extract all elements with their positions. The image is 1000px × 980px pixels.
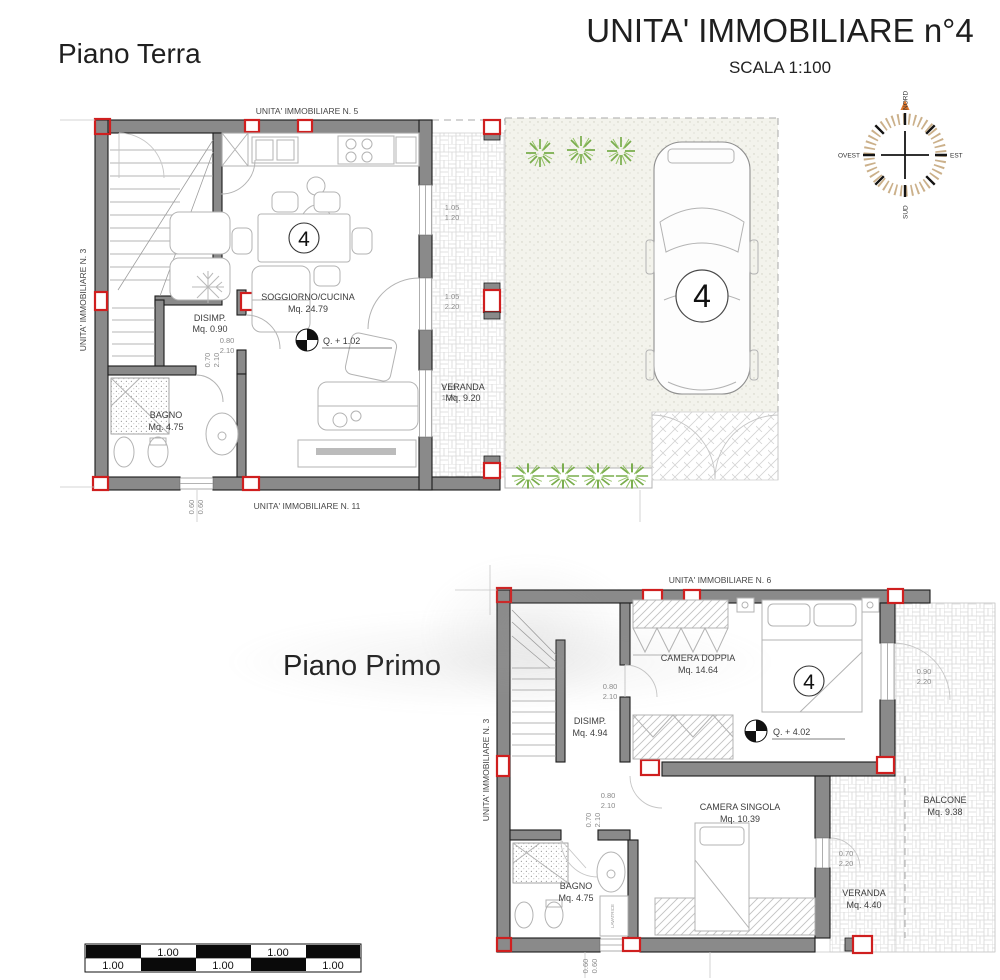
gf-living-area: Mq. 24.79 (288, 304, 328, 314)
ff-doppia-name: CAMERA DOPPIA (661, 653, 736, 663)
ff-dim: 0.90 (917, 667, 932, 676)
gf-dim: 0.80 (220, 336, 235, 345)
wardrobe (633, 715, 733, 759)
ff-neighbor-top-label: UNITA' IMMOBILIARE N. 6 (669, 575, 772, 585)
gf-living-name: SOGGIORNO/CUCINA (261, 292, 355, 302)
sheet-title: UNITA' IMMOBILIARE n°4 (560, 12, 1000, 50)
ff-veranda-area: Mq. 4.40 (846, 900, 881, 910)
compass-north-label: NORD (903, 91, 910, 110)
ground-floor-plan: 4 (60, 106, 778, 522)
ff-level-text: Q. + 4.02 (773, 727, 810, 737)
scale-note: SCALA 1:100 (560, 58, 1000, 78)
ff-neighbor-left-label: UNITA' IMMOBILIARE N. 3 (481, 718, 491, 821)
plan-drawing: NORD SUD OVEST EST (0, 0, 1000, 980)
ff-staircase (512, 610, 556, 756)
wardrobe (633, 600, 728, 628)
ff-bagno-name: BAGNO (560, 881, 593, 891)
ff-dim: 0.70 (839, 849, 854, 858)
ff-dim: 0.60 (590, 959, 599, 974)
ff-singola-name: CAMERA SINGOLA (700, 802, 781, 812)
compass-south-label: SUD (903, 205, 910, 219)
gf-dim: 2.20 (445, 302, 460, 311)
ff-dim: 2.20 (917, 677, 932, 686)
sink-icon (597, 852, 625, 892)
ff-disimp-area: Mq. 4.94 (572, 728, 607, 738)
gf-level-text: Q. + 1.02 (323, 336, 360, 346)
gf-dim: 2.10 (220, 346, 235, 355)
gf-disimp-area: Mq. 0.90 (192, 324, 227, 334)
compass-east-label: EST (950, 153, 963, 160)
ff-unit-badge: 4 (803, 671, 815, 694)
compass-rose: NORD SUD OVEST EST (838, 91, 963, 219)
scale-bar: 1.00 1.00 1.00 1.00 1.00 (85, 944, 361, 972)
car-unit-badge: 4 (693, 278, 711, 314)
ff-dim: 2.10 (603, 692, 618, 701)
gf-dim: 2.10 (212, 353, 221, 368)
compass-west-label: OVEST (838, 153, 860, 160)
floor-plan-sheet: NORD SUD OVEST EST (0, 0, 1000, 980)
gf-unit-badge: 4 (298, 228, 310, 251)
gf-veranda-name: VERANDA (441, 382, 485, 392)
gate-paving (652, 412, 778, 480)
ff-singola-area: Mq. 10.39 (720, 814, 760, 824)
gf-dim: 1.05 (445, 203, 460, 212)
washing-machine-label: LAVATRICE (610, 904, 615, 928)
tv-icon (316, 448, 396, 455)
gf-level-marker-icon (296, 329, 318, 351)
garden-area: 4 (505, 118, 778, 489)
gf-dim: 1.20 (445, 213, 460, 222)
ff-doppia-area: Mq. 14.64 (678, 665, 718, 675)
ff-balcone-name: BALCONE (923, 795, 966, 805)
scale-bar-label: 1.00 (267, 947, 288, 959)
bidet-icon (114, 437, 134, 467)
ff-dim: 2.10 (601, 801, 616, 810)
ff-bagno-area: Mq. 4.75 (558, 893, 593, 903)
gf-dim: 0.60 (196, 500, 205, 515)
first-floor-title: Piano Primo (283, 650, 441, 683)
gf-neighbor-top-label: UNITA' IMMOBILIARE N. 5 (256, 106, 359, 116)
ff-dim: 0.80 (603, 682, 618, 691)
ff-balcone-paving (895, 603, 995, 952)
ff-veranda-name: VERANDA (842, 888, 886, 898)
scale-bar-label: 1.00 (212, 960, 233, 972)
gf-neighbor-left-label: UNITA' IMMOBILIARE N. 3 (78, 248, 88, 351)
ground-floor-title: Piano Terra (58, 38, 201, 70)
ff-dim: 0.60 (581, 959, 590, 974)
ff-singola-furniture (633, 715, 815, 935)
gf-dim: 0.60 (187, 500, 196, 515)
scale-bar-label: 1.00 (322, 960, 343, 972)
gf-dim: 1.05 (445, 292, 460, 301)
ff-balcone-area: Mq. 9.38 (927, 807, 962, 817)
ff-dim: 0.70 (584, 813, 593, 828)
gf-bagno-name: BAGNO (150, 410, 183, 420)
ff-dim: 2.20 (839, 859, 854, 868)
sink-icon (206, 413, 238, 455)
scale-bar-label: 1.00 (157, 947, 178, 959)
ff-disimp-name: DISIMP. (574, 716, 606, 726)
gf-veranda-area: Mq. 9.20 (445, 393, 480, 403)
wc-icon (545, 902, 563, 928)
wc-icon (148, 437, 168, 467)
bidet-icon (515, 902, 533, 928)
gf-dim: 0.70 (203, 353, 212, 368)
first-floor-plan: 4 LAVATRICE Q. + 4.02 (455, 565, 995, 978)
gf-disimp-name: DISIMP. (194, 313, 226, 323)
gf-bagno-area: Mq. 4.75 (148, 422, 183, 432)
scale-bar-label: 1.00 (102, 960, 123, 972)
ff-level-marker-icon (745, 720, 767, 742)
ff-dim: 0.80 (601, 791, 616, 800)
gf-neighbor-bottom-label: UNITA' IMMOBILIARE N. 11 (254, 501, 361, 511)
car-top-view: 4 (646, 142, 758, 394)
ff-dim: 2.10 (593, 813, 602, 828)
compass-cross (881, 131, 929, 179)
